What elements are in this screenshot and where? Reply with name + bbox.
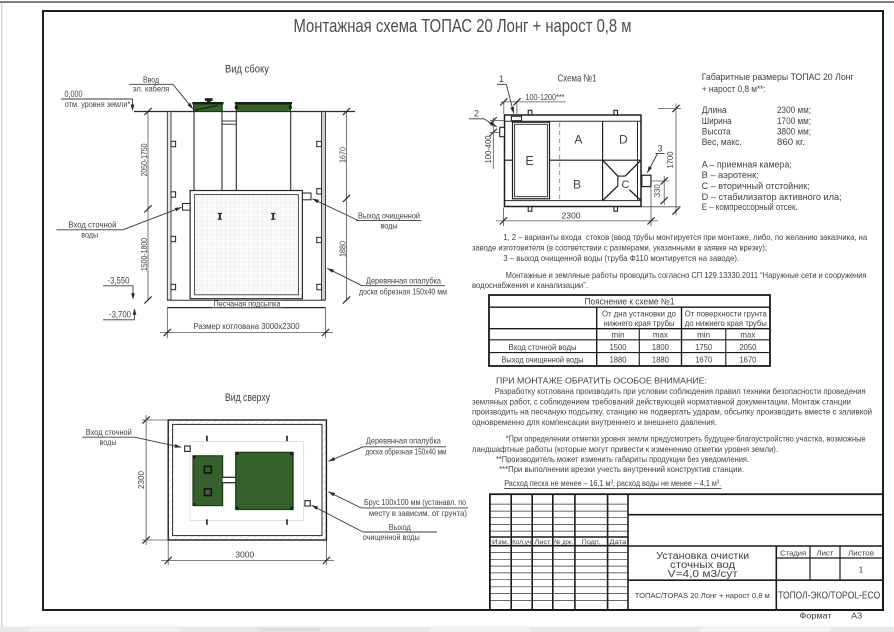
- svg-text:1880: 1880: [610, 355, 627, 365]
- svg-text:Листов: Листов: [848, 548, 874, 557]
- svg-text:ПРИ МОНТАЖЕ ОБРАТИТЬ ОСОБОЕ ВН: ПРИ МОНТАЖЕ ОБРАТИТЬ ОСОБОЕ ВНИМАНИЕ:: [496, 376, 707, 386]
- svg-text:1670: 1670: [695, 355, 712, 365]
- svg-text:до нижнего края трубы: до нижнего края трубы: [685, 319, 767, 328]
- svg-text:*При определении отметки уровн: *При определении отметки уровня земли пр…: [506, 434, 866, 444]
- svg-text:Стадия: Стадия: [780, 548, 806, 557]
- svg-text:доска обрезная 150x40 мм: доска обрезная 150x40 мм: [366, 446, 447, 456]
- svg-text:Подп.: Подп.: [582, 539, 601, 546]
- svg-text:2300 мм;: 2300 мм;: [777, 105, 811, 115]
- svg-text:2300: 2300: [136, 471, 146, 489]
- svg-text:одновременно для компенсации в: одновременно для компенсации внутреннего…: [472, 417, 717, 427]
- svg-text:Выход очищенной: Выход очищенной: [358, 210, 420, 220]
- svg-text:-3,550: -3,550: [108, 275, 130, 285]
- svg-text:1: 1: [499, 74, 504, 84]
- svg-text:***При выполнении врезки учест: ***При выполнении врезки учесть внутренн…: [499, 464, 744, 474]
- svg-text:Вход сточной воды: Вход сточной воды: [509, 342, 577, 352]
- svg-text:1670: 1670: [739, 355, 756, 365]
- svg-text:Лист: Лист: [535, 539, 551, 546]
- svg-text:Вид сбоку: Вид сбоку: [225, 64, 269, 76]
- svg-text:воды: воды: [100, 437, 117, 447]
- svg-text:ТОПАС/TOPAS 20 Лонг + нарост 0: ТОПАС/TOPAS 20 Лонг + нарост 0,8 м: [635, 591, 770, 600]
- svg-text:Вес, макс.: Вес, макс.: [702, 137, 742, 147]
- svg-text:месту в зависим. от грунта): месту в зависим. от грунта): [369, 508, 467, 518]
- svg-text:3800 мм;: 3800 мм;: [777, 126, 811, 136]
- svg-text:От поверхности грунта: От поверхности грунта: [685, 310, 767, 319]
- svg-text:2: 2: [474, 109, 479, 119]
- svg-text:Разработку котлована производи: Разработку котлована производить при усл…: [495, 386, 866, 396]
- svg-text:1, 2 – варианты входа стоков: 1, 2 – варианты входа стоков (ввод трубы…: [503, 232, 867, 242]
- svg-text:Габаритные размеры ТОПАС 20 Ло: Габаритные размеры ТОПАС 20 Лонг: [702, 72, 855, 82]
- svg-text:ТОПОЛ-ЭКО/TOPOL-ECO: ТОПОЛ-ЭКО/TOPOL-ECO: [778, 590, 880, 602]
- svg-text:водоснабжения и канализации”.: водоснабжения и канализации”.: [472, 280, 588, 290]
- svg-text:C – вторичный отстойник;: C – вторичный отстойник;: [702, 181, 810, 191]
- svg-text:Изм.: Изм.: [492, 539, 509, 546]
- svg-text:Высота: Высота: [702, 126, 731, 136]
- svg-text:заводе изготовителя (в соответ: заводе изготовителя (в соответствии с ра…: [472, 242, 767, 252]
- svg-text:1880: 1880: [338, 241, 348, 257]
- svg-text:1800: 1800: [652, 342, 669, 352]
- svg-text:max: max: [740, 331, 755, 340]
- svg-text:1670: 1670: [338, 147, 348, 163]
- svg-text:ландшафтные работы (которые мо: ландшафтные работы (которые могут привес…: [472, 444, 778, 454]
- svg-text:-3,700: -3,700: [109, 309, 131, 319]
- svg-text:860 кг.: 860 кг.: [777, 137, 805, 147]
- svg-text:**Производитель может изменить: **Производитель может изменить габариты …: [496, 454, 749, 464]
- svg-text:Размер котлована 3000x2300: Размер котлована 3000x2300: [194, 321, 300, 331]
- svg-text:B: B: [573, 178, 581, 192]
- svg-text:Вход сточной: Вход сточной: [68, 219, 116, 229]
- svg-text:1500-1800: 1500-1800: [139, 238, 149, 271]
- svg-text:100-400: 100-400: [483, 135, 493, 163]
- svg-text:земляных работ, с соблюдением: земляных работ, с соблюдением требований…: [472, 397, 851, 407]
- svg-text:нижнего края трубы: нижнего края трубы: [604, 319, 675, 328]
- svg-text:воды: воды: [81, 230, 98, 240]
- svg-text:min: min: [697, 331, 710, 340]
- svg-text:воды: воды: [381, 220, 398, 230]
- svg-text:А3: А3: [851, 611, 862, 620]
- svg-text:Песчаная подсыпка: Песчаная подсыпка: [214, 299, 281, 308]
- svg-text:№ док.: № док.: [554, 539, 573, 546]
- svg-text:E – компрессорный отсек.: E – компрессорный отсек.: [702, 202, 798, 212]
- svg-text:Деревянная опалубка: Деревянная опалубка: [366, 275, 441, 285]
- svg-text:очищенной воды: очищенной воды: [363, 532, 420, 542]
- svg-text:1880: 1880: [652, 355, 669, 365]
- svg-text:1500: 1500: [610, 342, 627, 352]
- svg-text:1700: 1700: [665, 151, 675, 168]
- svg-text:V=4,0 м3/сут: V=4,0 м3/сут: [668, 569, 738, 580]
- svg-text:Ширина: Ширина: [702, 116, 732, 126]
- svg-text:Выход: Выход: [389, 522, 411, 532]
- svg-text:D: D: [619, 132, 628, 146]
- svg-text:производить на песчаную подсып: производить на песчаную подсыпку, станци…: [472, 407, 872, 417]
- svg-text:1750: 1750: [695, 342, 712, 352]
- svg-text:E: E: [525, 154, 533, 168]
- svg-text:Вид сверху: Вид сверху: [225, 392, 270, 404]
- svg-text:Формат: Формат: [800, 611, 832, 620]
- svg-text:доска обрезная 150x40 мм: доска обрезная 150x40 мм: [359, 287, 447, 297]
- svg-text:3 – выход очищенной воды (труб: 3 – выход очищенной воды (труба Ф110 мон…: [503, 253, 739, 263]
- svg-text:Монтажная схема ТОПАС 20 Лонг: Монтажная схема ТОПАС 20 Лонг + нарост 0…: [294, 15, 632, 36]
- svg-text:1: 1: [859, 565, 864, 574]
- svg-text:эл. кабеля: эл. кабеля: [133, 84, 170, 94]
- svg-text:Схема №1: Схема №1: [558, 72, 597, 84]
- svg-text:Дата: Дата: [609, 539, 626, 546]
- svg-text:Брус 100x100 мм (устанавл. по: Брус 100x100 мм (устанавл. по: [364, 497, 466, 507]
- svg-text:От дна установки до: От дна установки до: [602, 310, 676, 319]
- svg-text:min: min: [612, 331, 625, 340]
- svg-text:1700 мм;: 1700 мм;: [777, 116, 811, 126]
- svg-text:Длина: Длина: [702, 105, 727, 115]
- svg-text:A – приемная камера;: A – приемная камера;: [702, 160, 792, 170]
- svg-text:+ нарост 0,8 м**:: + нарост 0,8 м**:: [702, 84, 766, 94]
- svg-text:max: max: [653, 331, 668, 340]
- svg-text:330: 330: [652, 184, 662, 197]
- svg-text:Расход песка не менее – 16,1 м: Расход песка не менее – 16,1 м³, расход …: [504, 478, 721, 488]
- svg-text:Выход очищенной воды: Выход очищенной воды: [502, 355, 584, 365]
- svg-text:отм. уровня земли*: отм. уровня земли*: [65, 100, 131, 109]
- svg-text:2050-1750: 2050-1750: [139, 143, 149, 176]
- svg-text:Вход сточной: Вход сточной: [86, 427, 132, 437]
- svg-text:Пояснение к схеме №1: Пояснение к схеме №1: [585, 297, 675, 307]
- svg-text:100-1200***: 100-1200***: [526, 92, 566, 102]
- svg-text:Монтажные и земляные работы пр: Монтажные и земляные работы проводить со…: [506, 270, 867, 280]
- svg-text:D – стабилизатор активного ила: D – стабилизатор активного ила;: [702, 192, 842, 202]
- svg-text:A: A: [574, 132, 582, 146]
- svg-text:Лист: Лист: [817, 548, 835, 557]
- svg-text:B – аэротенк;: B – аэротенк;: [702, 170, 759, 180]
- svg-text:Кол.уч: Кол.уч: [512, 539, 531, 546]
- svg-text:2050: 2050: [739, 342, 756, 352]
- svg-text:Деревянная опалубка: Деревянная опалубка: [366, 436, 441, 446]
- svg-text:3000: 3000: [235, 549, 254, 559]
- svg-text:C: C: [622, 179, 630, 191]
- svg-text:0,000: 0,000: [65, 89, 83, 99]
- svg-text:3: 3: [657, 143, 662, 153]
- svg-text:2300: 2300: [562, 210, 581, 220]
